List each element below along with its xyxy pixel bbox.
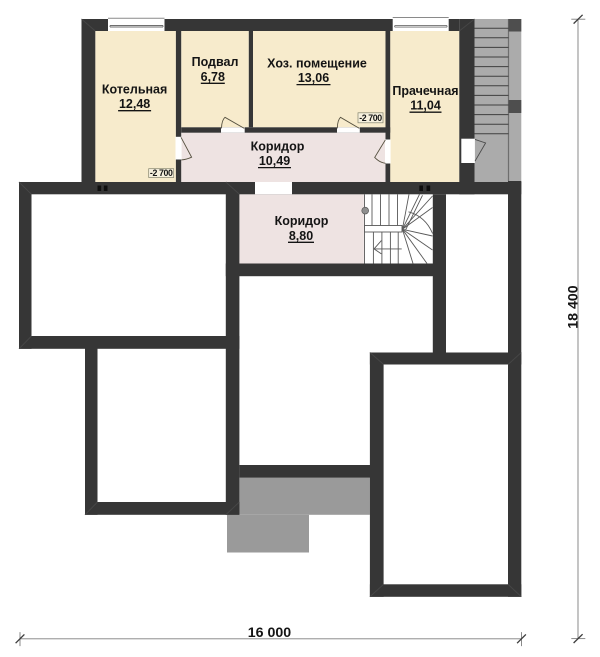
- svg-text:Хоз. помещение: Хоз. помещение: [267, 56, 367, 70]
- svg-text:12,48: 12,48: [119, 97, 150, 111]
- svg-text:13,06: 13,06: [298, 71, 329, 85]
- svg-text:Коридор: Коридор: [251, 139, 305, 153]
- svg-text:Прачечная: Прачечная: [392, 84, 458, 98]
- svg-text:Коридор: Коридор: [275, 214, 329, 228]
- svg-text:16 000: 16 000: [248, 625, 292, 641]
- svg-text:18 400: 18 400: [565, 285, 581, 329]
- svg-text:Подвал: Подвал: [192, 55, 239, 69]
- svg-text:Котельная: Котельная: [102, 82, 167, 96]
- svg-text:8,80: 8,80: [289, 229, 313, 243]
- svg-text:10,49: 10,49: [259, 154, 290, 168]
- svg-text:6,78: 6,78: [201, 70, 225, 84]
- svg-text:11,04: 11,04: [410, 99, 441, 113]
- svg-text:-2 700: -2 700: [150, 168, 173, 178]
- svg-text:-2 700: -2 700: [359, 113, 382, 123]
